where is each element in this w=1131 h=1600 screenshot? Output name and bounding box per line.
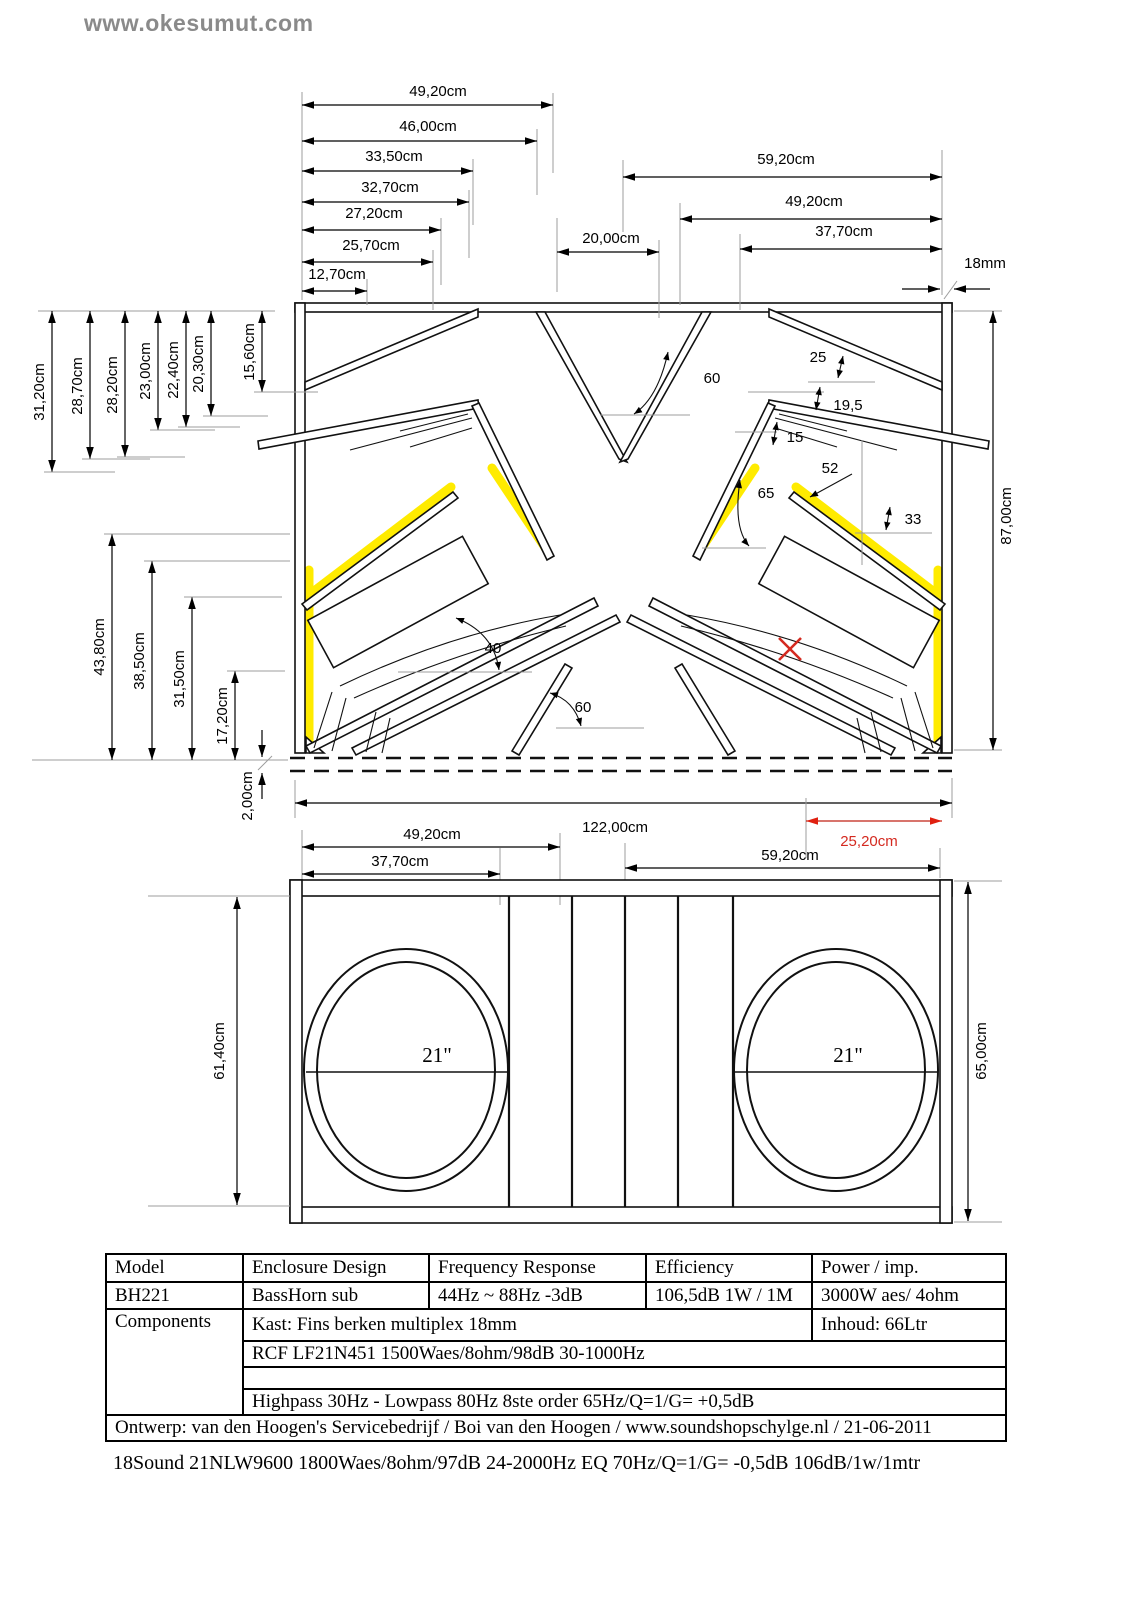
cross-section-view: 60 25 19,5 15 52 65 33 40 60 (31, 83, 1015, 905)
dim-right-height: 87,00cm (954, 311, 1015, 750)
angle-flare-top: 60 (704, 370, 721, 387)
table-row: Ontwerp: van den Hoogen's Servicebedrijf… (106, 1415, 1006, 1441)
dim-label: 12,70cm (308, 266, 366, 283)
cell-components-label: Components (106, 1309, 243, 1415)
dims-top-left: 49,20cm 46,00cm 33,50cm 32,70cm 27,20cm … (302, 83, 553, 310)
cell-empty (243, 1367, 1006, 1389)
dim-label: 49,20cm (785, 193, 843, 210)
angle-top-right: 25 (810, 349, 827, 366)
header-power-imp: Power / imp. (812, 1254, 1006, 1282)
dim-label: 59,20cm (761, 847, 819, 864)
alternative-driver-note: 18Sound 21NLW9600 1800Waes/8ohm/97dB 24-… (113, 1452, 920, 1475)
dim-label: 25,70cm (342, 237, 400, 254)
dim-label: 38,50cm (131, 632, 148, 690)
left-driver-cutout (304, 949, 508, 1191)
dim-label: 28,70cm (69, 357, 86, 415)
dim-label-port-width: 25,20cm (840, 833, 898, 850)
dim-label: 31,50cm (171, 650, 188, 708)
dim-front-inner-height: 61,40cm (148, 896, 290, 1206)
dim-label: 15,60cm (241, 323, 258, 381)
angle-panel52: 52 (822, 460, 839, 477)
dim-label: 28,20cm (104, 356, 121, 414)
header-efficiency: Efficiency (646, 1254, 812, 1282)
watermark: www.okesumut.com (84, 10, 314, 37)
angle-panel33: 33 (905, 511, 922, 528)
dim-label-wall-thickness: 18mm (964, 255, 1006, 272)
dim-front-outer-height: 65,00cm (954, 881, 1002, 1222)
dim-label: 32,70cm (361, 179, 419, 196)
center-v-baffles (536, 312, 711, 462)
basshorn-drawing: 60 25 19,5 15 52 65 33 40 60 (0, 0, 1131, 1240)
dim-label: 20,00cm (582, 230, 640, 247)
table-row: Components Kast: Fins berken multiplex 1… (106, 1309, 1006, 1341)
cell-design-credit: Ontwerp: van den Hoogen's Servicebedrijf… (106, 1415, 1006, 1441)
dim-label: 46,00cm (399, 118, 457, 135)
cell-efficiency: 106,5dB 1W / 1M (646, 1282, 812, 1309)
front-view: 21" 21" 61,40cm 65,00cm (148, 880, 1002, 1223)
dim-label: 43,80cm (91, 618, 108, 676)
left-driver-size-label: 21" (422, 1043, 452, 1067)
cell-kast: Kast: Fins berken multiplex 18mm (243, 1309, 812, 1341)
right-driver-cutout (734, 949, 938, 1191)
dim-label: 20,30cm (190, 335, 207, 393)
dim-label: 59,20cm (757, 151, 815, 168)
dim-label-front-inner: 61,40cm (211, 1022, 228, 1080)
header-frequency-response: Frequency Response (429, 1254, 646, 1282)
dim-label: 23,00cm (137, 342, 154, 400)
cell-inhoud: Inhoud: 66Ltr (812, 1309, 1006, 1341)
front-panel-dividers (509, 896, 733, 1207)
angle-baffle: 40 (485, 640, 502, 657)
dim-label: 31,20cm (31, 363, 48, 421)
rejected-panel-x-mark (779, 638, 801, 660)
dims-top-right: 59,20cm 49,20cm 37,70cm 18mm (623, 150, 1006, 310)
table-header-row: Model Enclosure Design Frequency Respons… (106, 1254, 1006, 1282)
dim-label-total-width: 122,00cm (582, 819, 648, 836)
dim-label: 49,20cm (403, 826, 461, 843)
dim-label: 49,20cm (409, 83, 467, 100)
cell-crossover: Highpass 30Hz - Lowpass 80Hz 8ste order … (243, 1389, 1006, 1415)
dim-label: 22,40cm (165, 341, 182, 399)
angle-port: 60 (575, 699, 592, 716)
spec-table: Model Enclosure Design Frequency Respons… (105, 1253, 1007, 1442)
cell-model: BH221 (106, 1282, 243, 1309)
cell-enclosure-design: BassHorn sub (243, 1282, 429, 1309)
dim-label: 37,70cm (815, 223, 873, 240)
dim-label: 37,70cm (371, 853, 429, 870)
angle-wedge: 15 (787, 429, 804, 446)
angle-reflector: 19,5 (833, 397, 862, 414)
dim-label-height: 87,00cm (998, 487, 1015, 545)
dim-label: 27,20cm (345, 205, 403, 222)
cell-driver: RCF LF21N451 1500Waes/8ohm/98dB 30-1000H… (243, 1341, 1006, 1367)
header-enclosure-design: Enclosure Design (243, 1254, 429, 1282)
right-driver-size-label: 21" (833, 1043, 863, 1067)
table-row: BH221 BassHorn sub 44Hz ~ 88Hz -3dB 106,… (106, 1282, 1006, 1309)
dim-label: 33,50cm (365, 148, 423, 165)
cell-frequency-response: 44Hz ~ 88Hz -3dB (429, 1282, 646, 1309)
dim-label-front-outer: 65,00cm (973, 1022, 990, 1080)
dims-left-bottom: 43,80cm 38,50cm 31,50cm 17,20cm 2,00cm (32, 534, 290, 821)
dim-label-bottom-offset: 2,00cm (239, 771, 256, 820)
angle-throat: 65 (758, 485, 775, 502)
dim-label: 17,20cm (214, 687, 231, 745)
header-model: Model (106, 1254, 243, 1282)
dims-left-top: 31,20cm 28,70cm 28,20cm 23,00cm 22,40cm … (31, 311, 318, 472)
cell-power-imp: 3000W aes/ 4ohm (812, 1282, 1006, 1309)
